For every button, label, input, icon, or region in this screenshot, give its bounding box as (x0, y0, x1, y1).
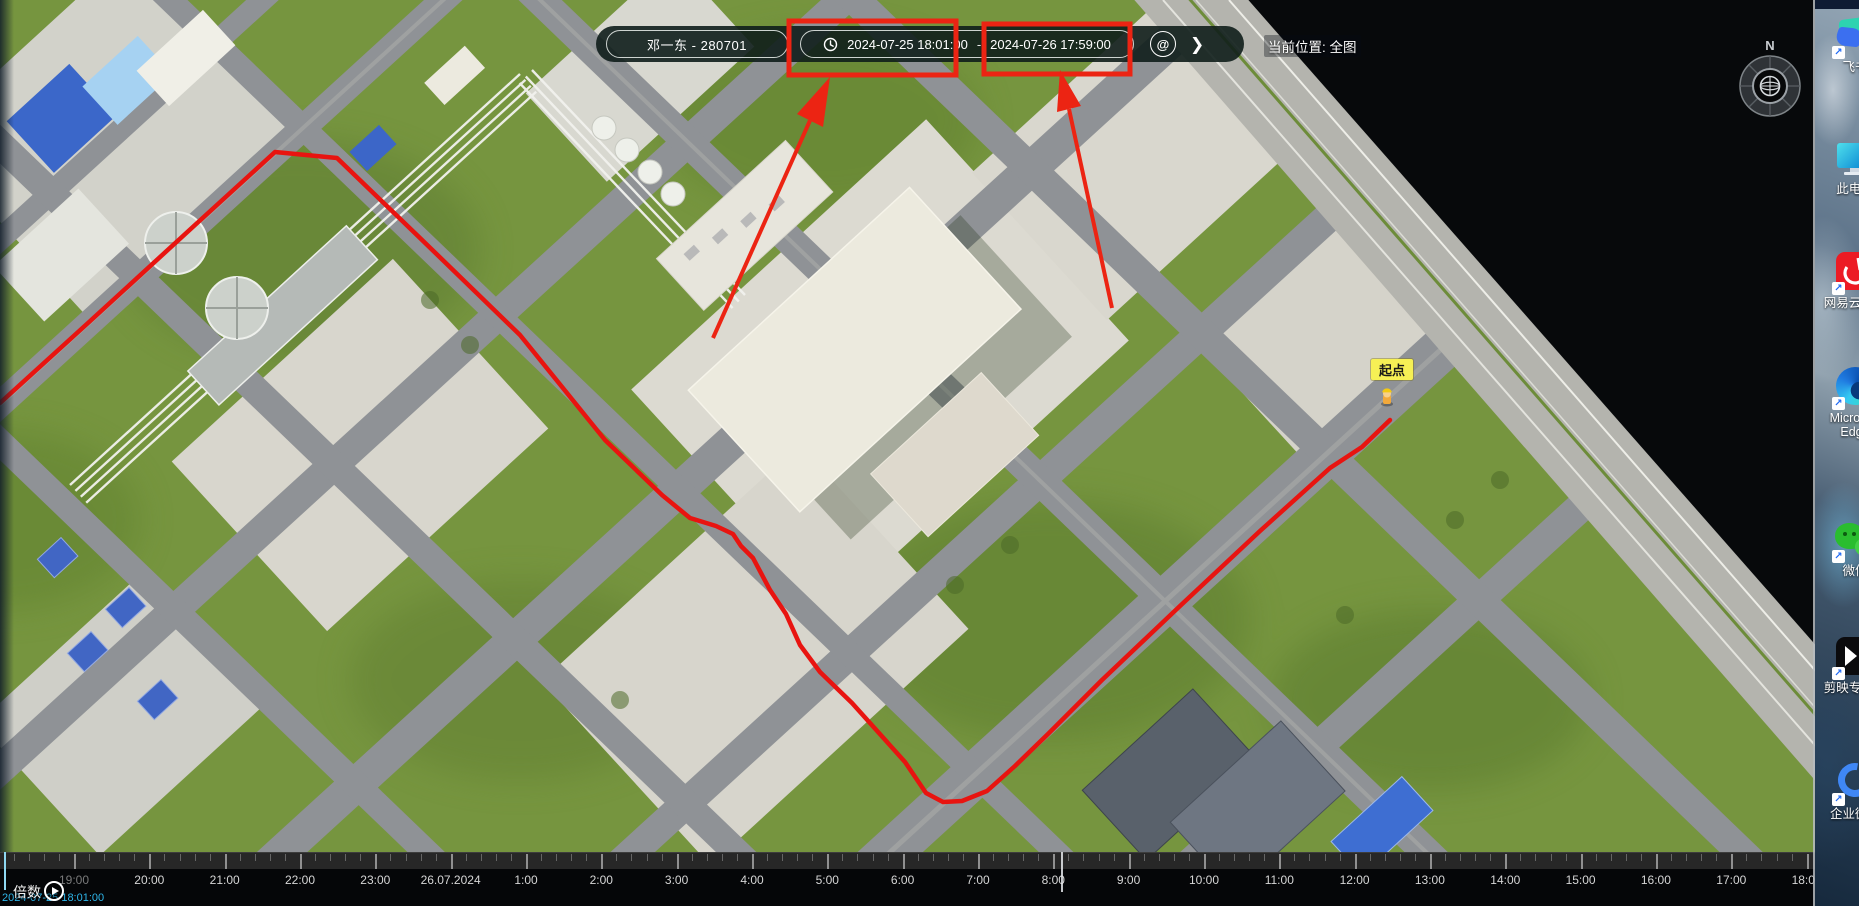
timeline-minor-tick (707, 854, 708, 861)
timeline-label: 4:00 (740, 873, 763, 887)
date-separator: - (977, 37, 981, 52)
timeline-minor-tick (466, 854, 467, 861)
timeline-minor-tick (1068, 854, 1069, 861)
timeline-minor-tick (1099, 854, 1100, 861)
timeline-minor-tick (14, 854, 15, 861)
timeline-minor-tick (421, 854, 422, 861)
timeline-minor-tick (1144, 854, 1145, 861)
timeline-hour-tick (677, 854, 679, 869)
wechat-icon: ↗ (1835, 520, 1859, 560)
desktop-icon-netease-music[interactable]: ↗ 网易云音乐 (1815, 252, 1859, 310)
timeline-minor-tick (315, 854, 316, 861)
desktop-icon-label: 微信 (1815, 564, 1859, 578)
timeline-minor-tick (948, 854, 949, 861)
timeline-hour-tick (375, 854, 377, 869)
timeline-ruler[interactable] (0, 852, 1815, 869)
timeline-minor-tick (436, 854, 437, 861)
track-search-toolbar: 邓一东 - 280701 2024-07-25 18:01:00 - 2024-… (596, 26, 1244, 62)
timeline-panel: 19:0020:0021:0022:0023:0026.07.20241:002… (0, 852, 1815, 906)
timeline-label: 21:00 (210, 873, 240, 887)
timeline-hour-tick (1129, 854, 1131, 869)
timeline-minor-tick (511, 854, 512, 861)
speed-multiplier-label: 倍数 (13, 882, 41, 902)
timeline-minor-tick (496, 854, 497, 861)
map-canvas[interactable]: 起点 (0, 0, 1815, 852)
timeline-minor-tick (180, 854, 181, 861)
timeline-minor-tick (1370, 854, 1371, 861)
window-edge (1813, 0, 1815, 906)
timeline-label: 23:00 (360, 873, 390, 887)
shortcut-arrow-icon: ↗ (1832, 550, 1845, 563)
timeline-minor-tick (722, 854, 723, 861)
timeline-minor-tick (782, 854, 783, 861)
timeline-hour-tick (1430, 854, 1432, 869)
timeline-hour-tick (752, 854, 754, 869)
timeline-label: 3:00 (665, 873, 688, 887)
timeline-minor-tick (1023, 854, 1024, 861)
timeline-minor-tick (918, 854, 919, 861)
compass-north-label: N (1765, 38, 1774, 53)
shortcut-arrow-icon: ↗ (1832, 282, 1845, 295)
timeline-minor-tick (812, 854, 813, 861)
timeline-minor-tick (1008, 854, 1009, 861)
timeline-minor-tick (1551, 854, 1552, 861)
timeline-minor-tick (873, 854, 874, 861)
timeline-label: 10:00 (1189, 873, 1219, 887)
timeline-minor-tick (993, 854, 994, 861)
timeline-label: 5:00 (816, 873, 839, 887)
timeline-minor-tick (1596, 854, 1597, 861)
desktop-icon-edge[interactable]: ↗ Microsoft Edge (1815, 366, 1859, 440)
desktop-icon-label: 网易云音乐 (1815, 296, 1859, 310)
timeline-minor-tick (647, 854, 648, 861)
screen: 起点 邓一东 - 280701 2024-07-25 18:01:00 - 20… (0, 0, 1859, 906)
start-point-label: 起点 (1371, 359, 1413, 380)
netease-music-icon: ↗ (1835, 252, 1859, 292)
timeline-playhead[interactable] (4, 852, 6, 890)
desktop-icon-label: Microsoft Edge (1823, 411, 1859, 440)
globe-icon (1761, 77, 1780, 96)
person-selector-label: 邓一东 - 280701 (647, 35, 747, 54)
timeline-minor-tick (390, 854, 391, 861)
timeline-label: 1:00 (514, 873, 537, 887)
timeline-minor-tick (737, 854, 738, 861)
next-button[interactable]: ❯ (1190, 36, 1204, 53)
play-button[interactable] (44, 881, 64, 901)
desktop-strip: ↗ 飞书 此电脑 ↗ 网易云音乐 (1815, 0, 1859, 906)
timeline-minor-tick (1746, 854, 1747, 861)
timeline-minor-tick (1716, 854, 1717, 861)
current-location-label: 当前位置: 全图 (1264, 35, 1361, 57)
timeline-label: 2:00 (590, 873, 613, 887)
timeline-hour-tick (978, 854, 980, 869)
search-button[interactable]: @ (1150, 31, 1176, 57)
timeline-hour-tick (1279, 854, 1281, 869)
timeline-minor-tick (842, 854, 843, 861)
timeline-hour-tick (601, 854, 603, 869)
desktop-icon-label: 剪映专业版 (1815, 681, 1859, 695)
jianying-icon: ↗ (1835, 637, 1859, 677)
timeline-label: 6:00 (891, 873, 914, 887)
timeline-minor-tick (1114, 854, 1115, 861)
timeline-minor-tick (1777, 854, 1778, 861)
date-end-value[interactable]: 2024-07-26 17:59:00 (990, 37, 1111, 52)
timeline-hour-tick (827, 854, 829, 869)
timeline-minor-tick (360, 854, 361, 861)
timeline-minor-tick (1566, 854, 1567, 861)
desktop-icon-label: 此电脑 (1815, 182, 1859, 196)
feishu-icon: ↗ (1835, 16, 1859, 56)
timeline-minor-tick (1325, 854, 1326, 861)
timeline-hour-tick (1656, 854, 1658, 869)
map-app-window: 起点 邓一东 - 280701 2024-07-25 18:01:00 - 20… (0, 0, 1815, 906)
timeline-minor-tick (1761, 854, 1762, 861)
timeline-minor-tick (1340, 854, 1341, 861)
timeline-minor-tick (134, 854, 135, 861)
desktop-icon-wecom[interactable]: ↗ 企业微信 (1815, 760, 1859, 821)
timeline-hour-tick (1204, 854, 1206, 869)
timeline-label: 22:00 (285, 873, 315, 887)
timeline-minor-tick (89, 854, 90, 861)
timeline-minor-tick (1611, 854, 1612, 861)
timeline-label: 7:00 (966, 873, 989, 887)
timeline-minor-tick (857, 854, 858, 861)
timeline-hour-tick (300, 854, 302, 869)
timeline-minor-tick (1294, 854, 1295, 861)
desktop-icon-label: 企业微信 (1815, 807, 1859, 821)
timeline-minor-tick (1264, 854, 1265, 861)
timeline-minor-tick (963, 854, 964, 861)
shortcut-arrow-icon: ↗ (1832, 46, 1845, 59)
shortcut-arrow-icon: ↗ (1832, 667, 1845, 680)
compass-control[interactable]: N (1737, 36, 1803, 118)
timeline-minor-tick (481, 854, 482, 861)
timeline-minor-tick (1415, 854, 1416, 861)
timeline-minor-tick (616, 854, 617, 861)
timeline-minor-tick (1174, 854, 1175, 861)
edge-icon: ↗ (1835, 367, 1859, 407)
timeline-hour-tick (1355, 854, 1357, 869)
timeline-hour-tick (451, 854, 453, 869)
timeline-label: 16:00 (1641, 873, 1671, 887)
wecom-icon: ↗ (1835, 763, 1859, 803)
timeline-hour-tick (526, 854, 528, 869)
shortcut-arrow-icon: ↗ (1832, 397, 1845, 410)
timeline-minor-tick (104, 854, 105, 861)
timeline-label: 11:00 (1265, 873, 1294, 887)
person-selector[interactable]: 邓一东 - 280701 (606, 30, 788, 58)
timeline-hour-tick (903, 854, 905, 869)
desktop-icon-this-pc[interactable]: 此电脑 (1815, 138, 1859, 196)
timeline-minor-tick (767, 854, 768, 861)
timeline-minor-tick (1520, 854, 1521, 861)
timeline-label: 26.07.2024 (421, 873, 481, 887)
timeline-hour-tick (1581, 854, 1583, 869)
timeline-minor-tick (330, 854, 331, 861)
timeline-hour-tick (1053, 854, 1055, 869)
timeline-minor-tick (1641, 854, 1642, 861)
timeline-minor-tick (1701, 854, 1702, 861)
timeline-hour-tick (1731, 854, 1733, 869)
timeline-label: 17:00 (1716, 873, 1746, 887)
timeline-minor-tick (44, 854, 45, 861)
timeline-minor-tick (1400, 854, 1401, 861)
timeline-minor-tick (1219, 854, 1220, 861)
timeline-hour-tick (1807, 854, 1809, 869)
desktop-icon-jianying[interactable]: ↗ 剪映专业版 (1815, 636, 1859, 695)
desktop-icon-wechat[interactable]: ↗ 微信 (1815, 520, 1859, 578)
timeline-minor-tick (119, 854, 120, 861)
desktop-icon-feishu[interactable]: ↗ 飞书 (1815, 16, 1859, 74)
timeline-minor-tick (285, 854, 286, 861)
timeline-minor-tick (195, 854, 196, 861)
timeline-hour-tick (1505, 854, 1507, 869)
timeline-minor-tick (1234, 854, 1235, 861)
timeline-minor-tick (1671, 854, 1672, 861)
wallpaper-top (1815, 0, 1859, 9)
timeline-minor-tick (345, 854, 346, 861)
search-icon: @ (1157, 37, 1170, 52)
timeline-minor-tick (1626, 854, 1627, 861)
timeline-minor-tick (1445, 854, 1446, 861)
chevron-right-icon: ❯ (1190, 35, 1204, 54)
timeline-minor-tick (164, 854, 165, 861)
date-range-picker[interactable]: 2024-07-25 18:01:00 - 2024-07-26 17:59:0… (800, 30, 1134, 58)
timeline-hour-tick (225, 854, 227, 869)
timeline-minor-tick (888, 854, 889, 861)
timeline-minor-tick (1249, 854, 1250, 861)
timeline-minor-tick (1475, 854, 1476, 861)
timeline-minor-tick (1792, 854, 1793, 861)
timeline-minor-tick (1535, 854, 1536, 861)
map-scene (0, 0, 1815, 852)
shortcut-arrow-icon: ↗ (1832, 793, 1845, 806)
timeline-label: 13:00 (1415, 873, 1445, 887)
timeline-minor-tick (59, 854, 60, 861)
timeline-minor-tick (210, 854, 211, 861)
timeline-minor-tick (571, 854, 572, 861)
timeline-label: 12:00 (1340, 873, 1370, 887)
date-start-value[interactable]: 2024-07-25 18:01:00 (847, 37, 968, 52)
timeline-hour-tick (149, 854, 151, 869)
timeline-label: 15:00 (1566, 873, 1596, 887)
timeline-label: 19:00 (59, 873, 89, 887)
timeline-minor-tick (1385, 854, 1386, 861)
timeline-minor-tick (1460, 854, 1461, 861)
timeline-minor-tick (1490, 854, 1491, 861)
timeline-minor-tick (933, 854, 934, 861)
timeline-minor-tick (586, 854, 587, 861)
timeline-minor-tick (541, 854, 542, 861)
timeline-hour-tick (74, 854, 76, 869)
timeline-minor-tick (797, 854, 798, 861)
timeline-minor-tick (692, 854, 693, 861)
timeline-minor-tick (1038, 854, 1039, 861)
timeline-label: 20:00 (134, 873, 164, 887)
clock-icon (823, 37, 838, 52)
timeline-minor-tick (1309, 854, 1310, 861)
play-icon (52, 887, 59, 895)
timeline-minor-tick (1083, 854, 1084, 861)
desktop-icon-label: 飞书 (1815, 60, 1859, 74)
this-pc-icon (1835, 138, 1859, 178)
timeline-minor-tick (1189, 854, 1190, 861)
timeline-label: 9:00 (1117, 873, 1140, 887)
timeline-minor-tick (1159, 854, 1160, 861)
timeline-minor-tick (662, 854, 663, 861)
timeline-minor-tick (270, 854, 271, 861)
timeline-minor-tick (29, 854, 30, 861)
timeline-minor-tick (556, 854, 557, 861)
timeline-label: 14:00 (1490, 873, 1520, 887)
timeline-marker (1061, 852, 1063, 892)
timeline-minor-tick (631, 854, 632, 861)
timeline-minor-tick (406, 854, 407, 861)
timeline-minor-tick (1686, 854, 1687, 861)
timeline-minor-tick (255, 854, 256, 861)
timeline-minor-tick (240, 854, 241, 861)
